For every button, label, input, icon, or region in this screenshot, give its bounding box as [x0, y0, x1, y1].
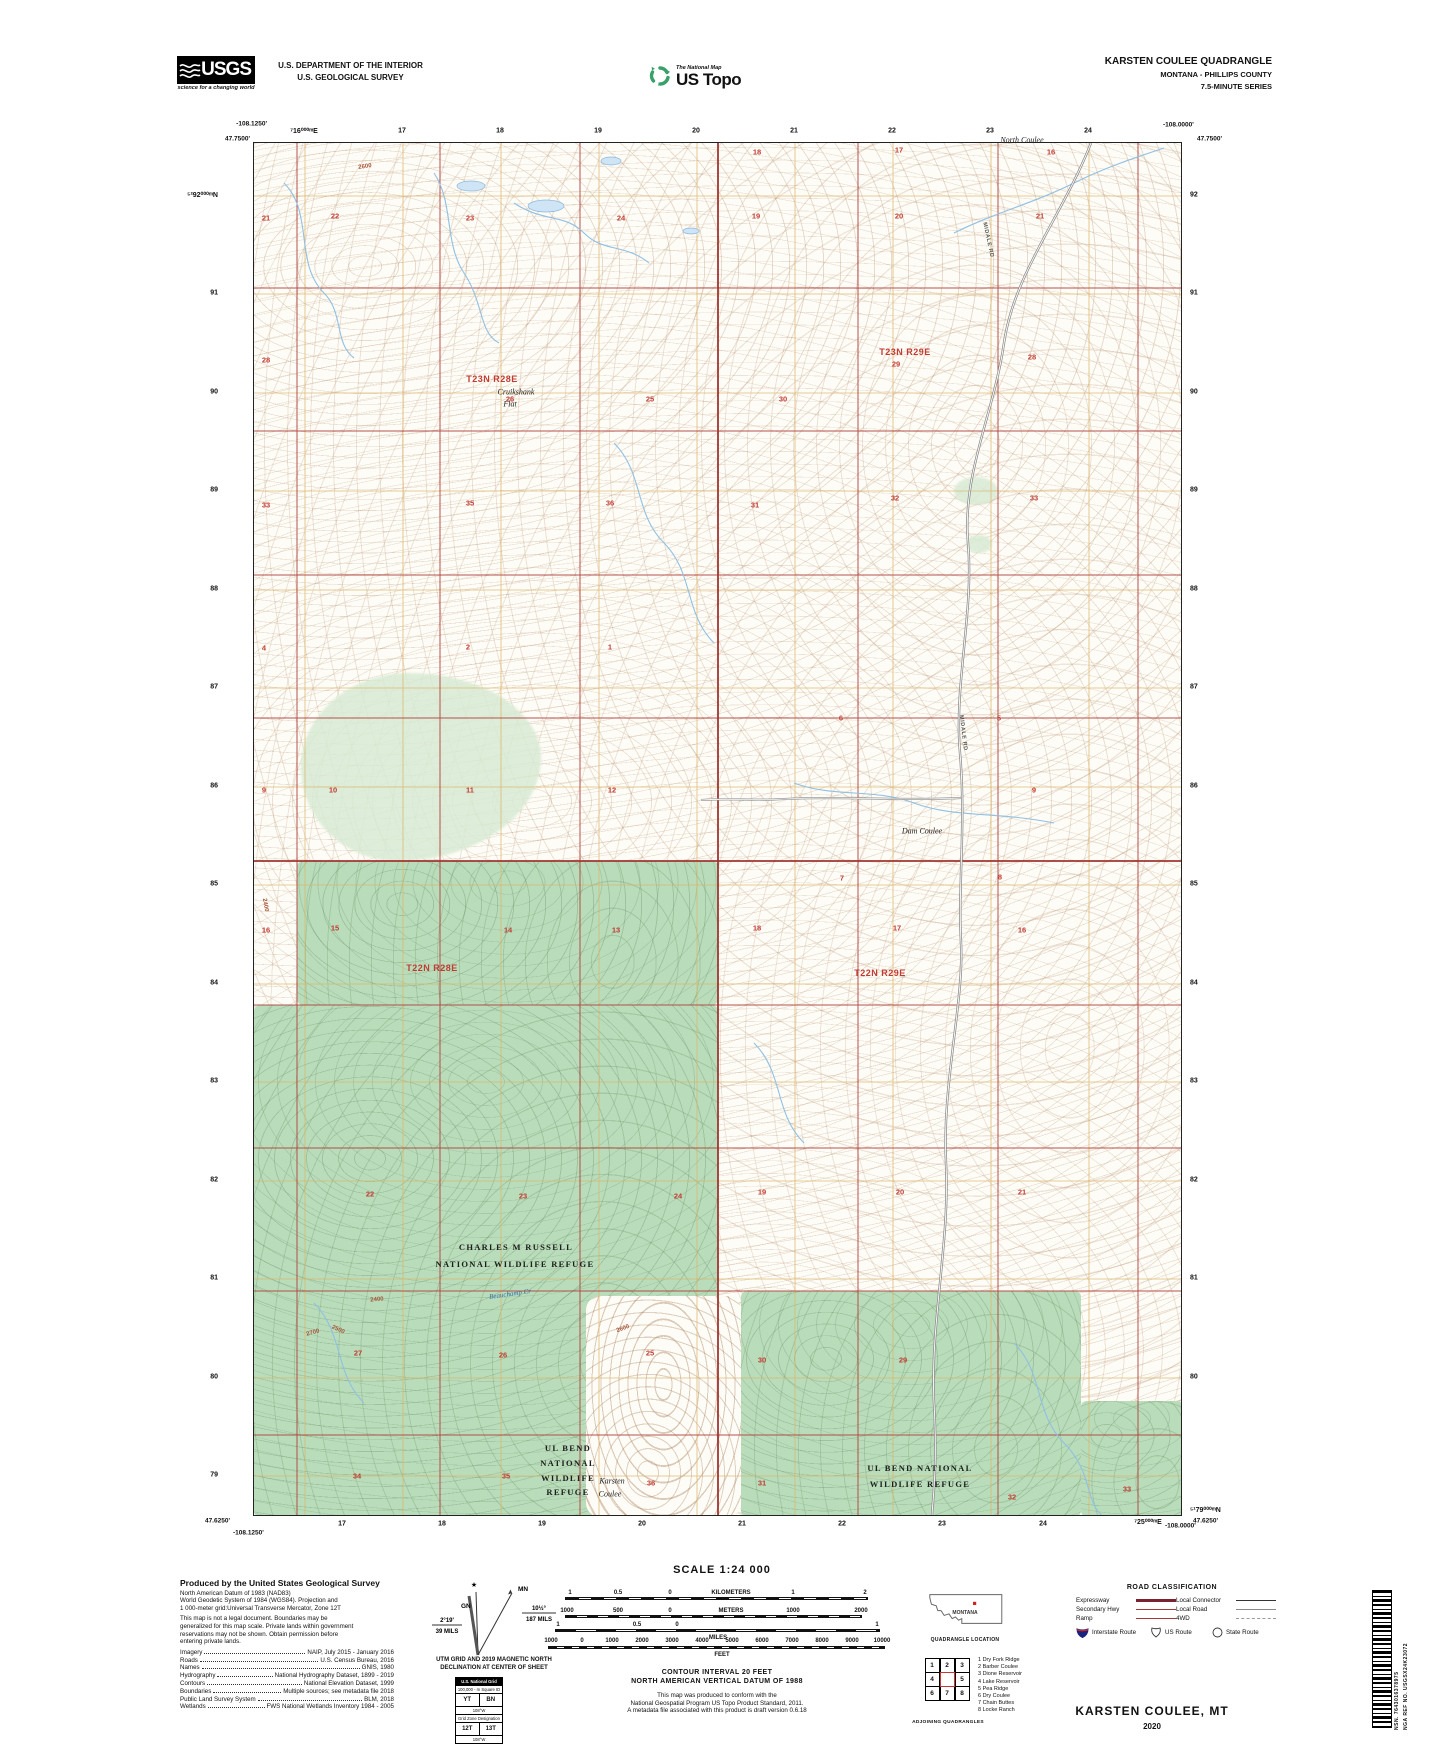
road-class-left-column: Expressway Secondary Hwy Ramp: [1076, 1596, 1176, 1623]
adjoining-grid-cell: 2: [940, 1658, 955, 1673]
adjoining-grid-cell: [940, 1672, 955, 1687]
local-connector-line-sample: [1236, 1600, 1276, 1601]
road-class-row: 4WD: [1176, 1614, 1276, 1623]
adjoining-quad-name: 5 Pea Ridge: [978, 1686, 1022, 1693]
road-class-row: Expressway: [1076, 1596, 1176, 1605]
scale-tick-label: 2: [863, 1590, 866, 1596]
scale-tick-label: 0: [580, 1638, 583, 1644]
utm-easting-label: ⁷16⁰⁰⁰ᵐE: [290, 127, 318, 135]
road-class-label: Ramp: [1076, 1615, 1093, 1622]
corner-coord-bl-lon: -108.1250': [233, 1530, 264, 1537]
datum-note: North American Datum of 1983 (NAD83) Wor…: [180, 1590, 394, 1613]
utm-easting-label: 17: [398, 128, 406, 135]
interstate-route-item: Interstate Route: [1076, 1627, 1136, 1638]
usng-square-id: 100,000 - m Square ID: [456, 1685, 502, 1693]
state-name: MONTANA: [925, 1610, 1005, 1616]
barcode: [1372, 1590, 1392, 1728]
usng-square-right: BN: [480, 1694, 503, 1706]
corner-coord-br-lat: 47.6250': [1193, 1518, 1218, 1525]
utm-easting-label: 21: [790, 128, 798, 135]
scale-tick-label: 8000: [815, 1638, 828, 1644]
expressway-line-sample: [1136, 1599, 1176, 1602]
true-north-star: ★: [471, 1581, 477, 1589]
adjoining-quads-list: 1 Dry Fork Ridge2 Barber Coulee3 Dione R…: [978, 1657, 1022, 1715]
usgs-wave-icon: [179, 60, 201, 80]
us-route-shield-icon: [1150, 1627, 1162, 1638]
scale-title: SCALE 1:24 000: [572, 1564, 872, 1576]
scale-tick-label: 2000: [854, 1608, 867, 1614]
scale-bar-kilometers: [565, 1597, 868, 1600]
utm-northing-label: ⁵²92⁰⁰⁰ᵐN: [187, 191, 218, 199]
utm-easting-label: 24: [1039, 1521, 1047, 1528]
quad-name: KARSTEN COULEE QUADRANGLE: [1032, 56, 1272, 67]
adjoining-grid-cell: 6: [925, 1686, 940, 1701]
utm-easting-label: 18: [438, 1521, 446, 1528]
utm-easting-label: 19: [594, 128, 602, 135]
utm-northing-label: 86: [210, 783, 218, 790]
utm-easting-label: 24: [1084, 128, 1092, 135]
scale-tick-label: 7000: [785, 1638, 798, 1644]
state-route-item: State Route: [1212, 1627, 1259, 1638]
road-class-row: Ramp: [1076, 1614, 1176, 1623]
scale-tick-label: FEET: [714, 1652, 729, 1658]
utm-northing-label: 89: [210, 487, 218, 494]
dept-line1: U.S. DEPARTMENT OF THE INTERIOR: [248, 60, 453, 72]
adjoining-grid-cell: 4: [925, 1672, 940, 1687]
adjoining-quad-name: 3 Dione Reservoir: [978, 1671, 1022, 1678]
scale-tick-label: 5000: [725, 1638, 738, 1644]
standard-conformance-note: This map was produced to conform with th…: [542, 1692, 892, 1715]
magnetic-north-label: MN: [518, 1586, 528, 1593]
utm-northing-label: 90: [210, 389, 218, 396]
usgs-topo-sheet: USGS science for a changing world U.S. D…: [0, 0, 1445, 1746]
corner-coord-tl-lat: 47.7500': [225, 136, 250, 143]
ustopo-wordmark: US Topo: [676, 71, 741, 88]
credits-heading: Produced by the United States Geological…: [180, 1580, 394, 1588]
adjoining-quad-name: 8 Locke Ranch: [978, 1707, 1022, 1714]
adjoining-grid-cell: 8: [955, 1686, 970, 1701]
usng-zone-left: 12T: [456, 1723, 480, 1735]
utm-northing-label: 79: [210, 1472, 218, 1479]
utm-northing-label: 91: [1190, 290, 1198, 297]
usng-square-left: YT: [456, 1694, 480, 1706]
vertical-datum-line: NORTH AMERICAN VERTICAL DATUM OF 1988: [567, 1677, 867, 1686]
declination-caption-line2: DECLINATION AT CENTER OF SHEET: [408, 1664, 580, 1672]
utm-easting-label: ⁷25⁰⁰⁰ᵐE: [1134, 1518, 1162, 1526]
utm-easting-label: 23: [938, 1521, 946, 1528]
scale-tick-label: 2000: [635, 1638, 648, 1644]
scale-tick-label: 0: [668, 1590, 671, 1596]
corner-coord-br-lon: -108.0000': [1165, 1523, 1196, 1530]
usgs-tagline: science for a changing world: [177, 85, 255, 91]
sheet-year: 2020: [1032, 1722, 1272, 1731]
source-row: ImageryNAIP, July 2015 - January 2016: [180, 1649, 394, 1657]
datum-line: North American Datum of 1983 (NAD83): [180, 1590, 291, 1597]
source-row: NamesGNIS, 1980: [180, 1664, 394, 1672]
source-row: RoadsU.S. Census Bureau, 2016: [180, 1657, 394, 1665]
utm-northing-label: 85: [1190, 881, 1198, 888]
map-body: [253, 142, 1182, 1516]
contour-interval-note: CONTOUR INTERVAL 20 FEET NORTH AMERICAN …: [567, 1668, 867, 1686]
utm-northing-label: 81: [210, 1275, 218, 1282]
map-canvas: [254, 143, 1182, 1516]
utm-northing-label: 90: [1190, 389, 1198, 396]
utm-northing-label: 87: [1190, 684, 1198, 691]
nga-ref-number: NGA REF NO. USGSX24K23072: [1403, 1590, 1409, 1730]
utm-northing-label: 80: [210, 1374, 218, 1381]
road-lines: [701, 143, 1091, 1516]
utm-easting-label: 19: [538, 1521, 546, 1528]
nsn-number: NSN. 7643016378975: [1394, 1590, 1400, 1730]
ustopo-logo: The National Map US Topo: [648, 64, 741, 88]
adjoining-quad-name: 4 Lake Reservoir: [978, 1679, 1022, 1686]
scale-bar-miles: [555, 1629, 880, 1632]
quadrangle-title-block: KARSTEN COULEE QUADRANGLE MONTANA - PHIL…: [1032, 56, 1272, 91]
state-route-circle-icon: [1212, 1627, 1223, 1638]
adjoining-grid-cell: 1: [925, 1658, 940, 1673]
us-route-label: US Route: [1165, 1629, 1192, 1636]
mn-mils: 187 MILS: [526, 1617, 552, 1623]
usng-zone-label: Grid Zone Designation: [456, 1714, 502, 1722]
gn-mils: 39 MILS: [436, 1629, 459, 1635]
road-class-row: Local Connector: [1176, 1596, 1276, 1605]
utm-easting-label: 20: [692, 128, 700, 135]
scale-tick-label: METERS: [718, 1608, 743, 1614]
usng-zone-cells: 12T 13T: [456, 1722, 502, 1735]
fourwd-line-sample: [1236, 1618, 1276, 1619]
scale-tick-label: 0: [668, 1608, 671, 1614]
usng-lon2: 108°W: [456, 1735, 502, 1743]
utm-easting-label: 23: [986, 128, 994, 135]
road-class-right-column: Local Connector Local Road 4WD: [1176, 1596, 1276, 1623]
corner-coord-tr-lat: 47.7500': [1197, 136, 1222, 143]
state-locator-map: MONTANA: [925, 1588, 1005, 1630]
scale-tick-label: 0.5: [614, 1590, 622, 1596]
utm-northing-label: 82: [1190, 1177, 1198, 1184]
scale-tick-label: 1: [875, 1622, 878, 1628]
adjoining-grid-cell: 5: [955, 1672, 970, 1687]
utm-northing-label: 83: [210, 1078, 218, 1085]
production-credits: Produced by the United States Geological…: [180, 1580, 394, 1711]
utm-northing-label: ⁵¹79⁰⁰⁰ᵐN: [1190, 1506, 1221, 1514]
quadrangle-location-caption: QUADRANGLE LOCATION: [923, 1637, 1007, 1643]
utm-northing-label: 84: [210, 980, 218, 987]
quad-series: 7.5-MINUTE SERIES: [1032, 82, 1272, 91]
scale-bar-meters: [565, 1615, 862, 1618]
utm-northing-label: 80: [1190, 1374, 1198, 1381]
adjoining-quad-name: 7 Chain Buttes: [978, 1700, 1022, 1707]
declination-caption-line1: UTM GRID AND 2019 MAGNETIC NORTH: [408, 1656, 580, 1664]
scale-tick-label: 1000: [605, 1638, 618, 1644]
scale-tick-label: 1000: [786, 1608, 799, 1614]
utm-northing-label: 81: [1190, 1275, 1198, 1282]
declination-caption: UTM GRID AND 2019 MAGNETIC NORTH DECLINA…: [408, 1656, 580, 1672]
data-sources-list: ImageryNAIP, July 2015 - January 2016Roa…: [180, 1649, 394, 1711]
utm-northing-label: 83: [1190, 1078, 1198, 1085]
usng-lon1: 108°W: [456, 1706, 502, 1714]
usng-header: U.S. National Grid: [456, 1678, 502, 1685]
ramp-line-sample: [1136, 1618, 1176, 1619]
utm-northing-label: 88: [210, 586, 218, 593]
sheet-title-block: KARSTEN COULEE, MT 2020: [1032, 1704, 1272, 1731]
legal-line: entering private lands.: [180, 1638, 241, 1645]
utm-easting-label: 21: [738, 1521, 746, 1528]
road-class-label: 4WD: [1176, 1615, 1190, 1622]
utm-easting-label: 22: [838, 1521, 846, 1528]
scale-tick-label: 500: [613, 1608, 623, 1614]
pond-shapes: [457, 157, 699, 234]
us-route-item: US Route: [1150, 1627, 1192, 1638]
scale-tick-label: 9000: [845, 1638, 858, 1644]
utm-northing-label: 82: [210, 1177, 218, 1184]
utm-northing-label: 92: [1190, 192, 1198, 199]
interstate-shield-icon: [1076, 1627, 1089, 1638]
road-class-label: Local Road: [1176, 1606, 1207, 1613]
utm-northing-label: 89: [1190, 487, 1198, 494]
usgs-logo: USGS: [177, 56, 255, 84]
usng-square-cells: YT BN: [456, 1693, 502, 1706]
source-row: WetlandsFWS National Wetlands Inventory …: [180, 1703, 394, 1711]
utm-northing-label: 84: [1190, 980, 1198, 987]
scale-tick-label: MILES: [709, 1635, 727, 1641]
legal-line: reservations may not be shown. Obtain pe…: [180, 1631, 338, 1638]
scale-tick-label: 3000: [665, 1638, 678, 1644]
sheet-name: KARSTEN COULEE, MT: [1032, 1704, 1272, 1718]
scale-tick-label: 10000: [874, 1638, 891, 1644]
corner-coord-tr-lon: -108.0000': [1163, 122, 1194, 129]
datum-line: 1 000-meter grid:Universal Transverse Me…: [180, 1605, 341, 1612]
adjoining-quad-name: 6 Dry Coulee: [978, 1693, 1022, 1700]
utm-easting-label: 17: [338, 1521, 346, 1528]
quad-state-county: MONTANA - PHILLIPS COUNTY: [1032, 70, 1272, 79]
local-road-line-sample: [1236, 1609, 1276, 1610]
utm-easting-label: 18: [496, 128, 504, 135]
road-class-row: Secondary Hwy: [1076, 1605, 1176, 1614]
utm-northing-label: 87: [210, 684, 218, 691]
contour-interval-line: CONTOUR INTERVAL 20 FEET: [567, 1668, 867, 1677]
scale-tick-label: KILOMETERS: [711, 1590, 750, 1596]
usng-box: U.S. National Grid 100,000 - m Square ID…: [455, 1677, 503, 1744]
legal-line: This map is not a legal document. Bounda…: [180, 1615, 328, 1622]
adjoining-quad-name: 2 Barber Coulee: [978, 1664, 1022, 1671]
department-heading: U.S. DEPARTMENT OF THE INTERIOR U.S. GEO…: [248, 60, 453, 84]
scale-tick-label: 0: [675, 1622, 678, 1628]
road-class-label: Secondary Hwy: [1076, 1606, 1119, 1613]
recycle-arrows-icon: [648, 64, 672, 88]
montana-outline: [925, 1588, 1005, 1630]
scale-tick-label: 0.5: [633, 1622, 641, 1628]
utm-northing-label: 86: [1190, 783, 1198, 790]
road-classification-title: ROAD CLASSIFICATION: [1062, 1584, 1282, 1591]
road-class-label: Local Connector: [1176, 1597, 1221, 1604]
adjoining-grid-cell: 3: [955, 1658, 970, 1673]
mn-degrees: 10½°: [532, 1605, 547, 1612]
legal-note: This map is not a legal document. Bounda…: [180, 1615, 394, 1645]
state-route-label: State Route: [1226, 1629, 1259, 1636]
source-row: Public Land Survey SystemBLM, 2018: [180, 1696, 394, 1704]
source-row: BoundariesMultiple sources; see metadata…: [180, 1688, 394, 1696]
quad-location-dot: [973, 1602, 976, 1605]
gn-degrees: 2°19': [440, 1618, 454, 1624]
datum-line: World Geodetic System of 1984 (WGS84). P…: [180, 1597, 338, 1604]
conform-line: A metadata file associated with this pro…: [542, 1707, 892, 1715]
utm-easting-label: 20: [638, 1521, 646, 1528]
scale-tick-label: 6000: [755, 1638, 768, 1644]
legal-line: generalized for this map scale. Private …: [180, 1623, 353, 1630]
conform-line: This map was produced to conform with th…: [542, 1692, 892, 1700]
utm-northing-label: 85: [210, 881, 218, 888]
corner-coord-bl-lat: 47.6250': [205, 1518, 230, 1525]
scale-tick-label: 1: [791, 1590, 794, 1596]
utm-northing-label: 91: [210, 290, 218, 297]
conform-line: National Geospatial Program US Topo Prod…: [542, 1700, 892, 1708]
grid-north-label: GN: [461, 1603, 471, 1610]
interstate-route-label: Interstate Route: [1092, 1629, 1136, 1636]
road-class-row: Local Road: [1176, 1605, 1276, 1614]
stream-lines: [284, 148, 1164, 1516]
scale-tick-label: 4000: [695, 1638, 708, 1644]
scale-bar-feet: [548, 1646, 885, 1649]
road-class-label: Expressway: [1076, 1597, 1109, 1604]
secondary-hwy-line-sample: [1136, 1609, 1176, 1610]
adjoining-grid-cell: 7: [940, 1686, 955, 1701]
source-row: HydrographyNational Hydrography Dataset,…: [180, 1672, 394, 1680]
usng-zone-right: 13T: [480, 1723, 503, 1735]
utm-northing-label: 88: [1190, 586, 1198, 593]
township-boundary-lines: [254, 143, 1182, 1516]
source-row: ContoursNational Elevation Dataset, 1999: [180, 1680, 394, 1688]
adjoining-quad-name: 1 Dry Fork Ridge: [978, 1657, 1022, 1664]
corner-coord-tl-lon: -108.1250': [236, 121, 267, 128]
adjoining-quads-caption: ADJOINING QUADRANGLES: [898, 1720, 998, 1725]
usgs-wordmark: USGS: [201, 59, 251, 81]
adjoining-quads-grid: 12345678: [925, 1658, 970, 1700]
utm-easting-label: 22: [888, 128, 896, 135]
dept-line2: U.S. GEOLOGICAL SURVEY: [248, 72, 453, 84]
